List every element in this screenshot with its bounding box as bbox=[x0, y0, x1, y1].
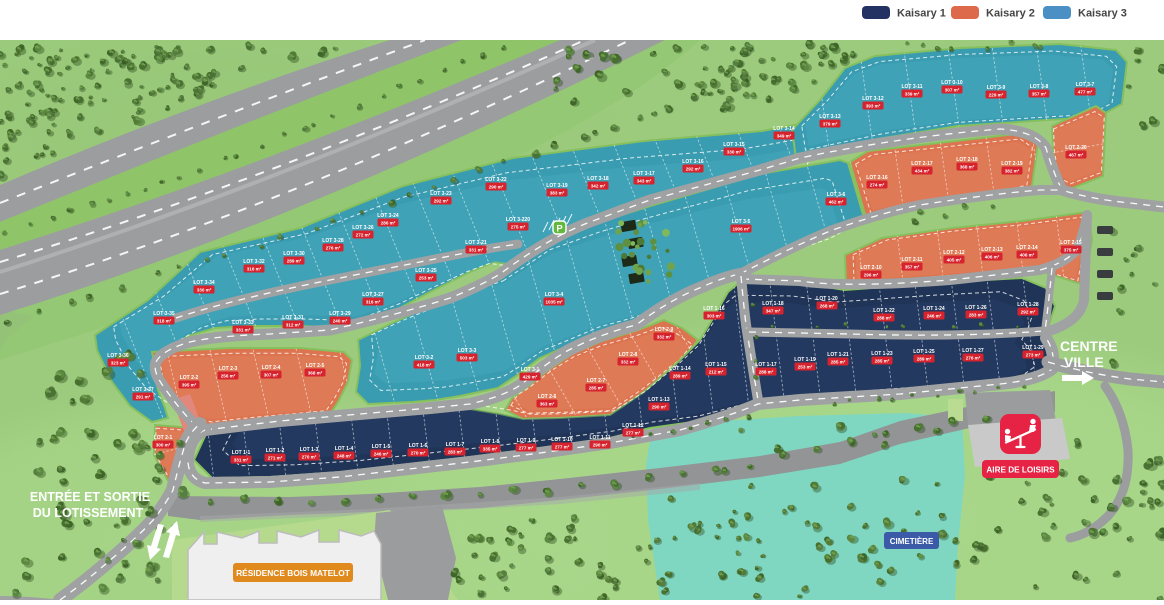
svg-text:289 m²: 289 m² bbox=[917, 357, 932, 362]
svg-text:LOT 3-25: LOT 3-25 bbox=[415, 268, 437, 274]
svg-text:LOT 1-28: LOT 1-28 bbox=[1017, 302, 1039, 308]
svg-text:LOT 1-12: LOT 1-12 bbox=[622, 423, 644, 429]
svg-text:LOT 1-14: LOT 1-14 bbox=[669, 366, 691, 372]
svg-text:342 m²: 342 m² bbox=[591, 184, 606, 189]
svg-text:339 m²: 339 m² bbox=[905, 92, 920, 97]
svg-text:LOT 2-16: LOT 2-16 bbox=[866, 175, 888, 181]
svg-text:LOT 3-13: LOT 3-13 bbox=[819, 114, 841, 120]
svg-text:LOT 3-12: LOT 3-12 bbox=[862, 96, 884, 102]
svg-text:LOT 2-14: LOT 2-14 bbox=[1016, 245, 1038, 251]
svg-text:LOT 1-9: LOT 1-9 bbox=[517, 438, 536, 444]
svg-text:LOT 1-4: LOT 1-4 bbox=[335, 446, 354, 452]
svg-text:289 m²: 289 m² bbox=[287, 259, 302, 264]
svg-text:274 m²: 274 m² bbox=[870, 183, 885, 188]
svg-text:332 m²: 332 m² bbox=[657, 335, 672, 340]
svg-text:LOT 3-14: LOT 3-14 bbox=[773, 126, 795, 132]
svg-text:LOT 1-15: LOT 1-15 bbox=[705, 362, 727, 368]
svg-text:LOT 1-3: LOT 1-3 bbox=[300, 447, 319, 453]
svg-text:LOT 3-8: LOT 3-8 bbox=[1030, 84, 1049, 90]
svg-text:LOT 3-29: LOT 3-29 bbox=[329, 311, 351, 317]
svg-text:268 m²: 268 m² bbox=[820, 304, 835, 309]
svg-text:382 m²: 382 m² bbox=[1005, 169, 1020, 174]
svg-text:270 m²: 270 m² bbox=[302, 455, 317, 460]
svg-text:DU LOTISSEMENT: DU LOTISSEMENT bbox=[33, 506, 144, 520]
svg-text:477 m²: 477 m² bbox=[1078, 90, 1093, 95]
svg-text:347 m²: 347 m² bbox=[766, 309, 781, 314]
svg-text:292 m²: 292 m² bbox=[686, 167, 701, 172]
svg-text:LOT 2-13: LOT 2-13 bbox=[981, 247, 1003, 253]
svg-text:LOT 3-37: LOT 3-37 bbox=[132, 387, 154, 393]
svg-text:LOT 3-9: LOT 3-9 bbox=[987, 85, 1006, 91]
svg-text:296 m²: 296 m² bbox=[864, 273, 879, 278]
svg-text:240 m²: 240 m² bbox=[333, 319, 348, 324]
svg-text:462 m²: 462 m² bbox=[829, 200, 844, 205]
svg-text:277 m²: 277 m² bbox=[519, 446, 534, 451]
svg-text:LOT 3-5: LOT 3-5 bbox=[732, 219, 751, 225]
svg-text:LOT 2-20: LOT 2-20 bbox=[1065, 145, 1087, 151]
svg-text:LOT 1-27: LOT 1-27 bbox=[962, 348, 984, 354]
svg-text:503 m²: 503 m² bbox=[460, 356, 475, 361]
svg-text:LOT 3-24: LOT 3-24 bbox=[377, 213, 399, 219]
svg-text:RÉSIDENCE BOIS MATELOT: RÉSIDENCE BOIS MATELOT bbox=[236, 567, 351, 578]
svg-text:248 m²: 248 m² bbox=[337, 454, 352, 459]
svg-text:292 m²: 292 m² bbox=[1021, 310, 1036, 315]
svg-text:331 m²: 331 m² bbox=[236, 328, 251, 333]
svg-text:LOT 2-8: LOT 2-8 bbox=[619, 352, 638, 358]
svg-text:312 m²: 312 m² bbox=[286, 323, 301, 328]
svg-text:LOT 3-36: LOT 3-36 bbox=[107, 353, 129, 359]
svg-text:406 m²: 406 m² bbox=[985, 255, 1000, 260]
svg-text:LOT 3-35: LOT 3-35 bbox=[153, 311, 175, 317]
svg-text:307 m²: 307 m² bbox=[264, 373, 279, 378]
svg-text:VILLE: VILLE bbox=[1064, 354, 1104, 370]
svg-text:323 m²: 323 m² bbox=[111, 361, 126, 366]
svg-text:316 m²: 316 m² bbox=[247, 267, 262, 272]
svg-text:405 m²: 405 m² bbox=[947, 258, 962, 263]
svg-text:P: P bbox=[556, 224, 563, 235]
svg-text:330 m²: 330 m² bbox=[197, 288, 212, 293]
svg-text:331 m²: 331 m² bbox=[234, 458, 249, 463]
svg-text:LOT 3-16: LOT 3-16 bbox=[682, 159, 704, 165]
svg-text:LOT 2-11: LOT 2-11 bbox=[901, 257, 922, 263]
svg-text:316 m²: 316 m² bbox=[366, 300, 381, 305]
svg-text:LOT 3-17: LOT 3-17 bbox=[633, 171, 655, 177]
svg-text:288 m²: 288 m² bbox=[759, 370, 774, 375]
svg-text:256 m²: 256 m² bbox=[221, 374, 236, 379]
svg-text:LOT 3-27: LOT 3-27 bbox=[362, 292, 384, 298]
svg-text:LOT 1-24: LOT 1-24 bbox=[923, 306, 945, 312]
svg-text:289 m²: 289 m² bbox=[673, 374, 688, 379]
svg-text:LOT 1-7: LOT 1-7 bbox=[446, 442, 465, 448]
svg-text:LOT 3-15: LOT 3-15 bbox=[723, 142, 745, 148]
svg-text:LOT 1-26: LOT 1-26 bbox=[965, 305, 987, 311]
svg-text:253 m²: 253 m² bbox=[419, 276, 434, 281]
svg-text:LOT 3-21: LOT 3-21 bbox=[465, 240, 487, 246]
svg-text:379 m²: 379 m² bbox=[823, 122, 838, 127]
svg-text:406 m²: 406 m² bbox=[1020, 253, 1035, 258]
svg-text:368 m²: 368 m² bbox=[960, 165, 975, 170]
svg-text:246 m²: 246 m² bbox=[927, 314, 942, 319]
svg-text:Kaisary 2: Kaisary 2 bbox=[986, 8, 1035, 20]
svg-text:418 m²: 418 m² bbox=[417, 363, 432, 368]
svg-text:277 m²: 277 m² bbox=[555, 445, 570, 450]
svg-text:LOT 3-34: LOT 3-34 bbox=[193, 280, 215, 286]
svg-text:212 m²: 212 m² bbox=[709, 370, 724, 375]
svg-text:307 m²: 307 m² bbox=[945, 88, 960, 93]
svg-text:285 m²: 285 m² bbox=[831, 360, 846, 365]
svg-text:343 m²: 343 m² bbox=[637, 179, 652, 184]
svg-text:1035 m²: 1035 m² bbox=[545, 300, 563, 305]
svg-text:LOT 3-22: LOT 3-22 bbox=[485, 177, 507, 183]
svg-text:LOT 3-11: LOT 3-11 bbox=[901, 84, 922, 90]
svg-text:LOT 3-19: LOT 3-19 bbox=[546, 183, 568, 189]
svg-text:300 m²: 300 m² bbox=[156, 443, 171, 448]
svg-text:330 m²: 330 m² bbox=[727, 150, 742, 155]
svg-text:285 m²: 285 m² bbox=[589, 386, 604, 391]
svg-text:LOT 3-30: LOT 3-30 bbox=[283, 251, 305, 257]
svg-text:LOT 2-7: LOT 2-7 bbox=[587, 378, 606, 384]
svg-text:LOT 1-20: LOT 1-20 bbox=[816, 296, 838, 302]
svg-text:467 m²: 467 m² bbox=[1069, 153, 1084, 158]
svg-text:357 m²: 357 m² bbox=[1032, 92, 1047, 97]
svg-text:LOT 1-6: LOT 1-6 bbox=[409, 443, 428, 449]
svg-text:253 m²: 253 m² bbox=[798, 365, 813, 370]
svg-text:LOT 1-22: LOT 1-22 bbox=[873, 308, 895, 314]
svg-text:349 m²: 349 m² bbox=[777, 134, 792, 139]
svg-text:277 m²: 277 m² bbox=[626, 431, 641, 436]
svg-text:LOT 2-2: LOT 2-2 bbox=[180, 375, 199, 381]
svg-text:LOT 3-3: LOT 3-3 bbox=[458, 348, 477, 354]
svg-text:LOT 1-17: LOT 1-17 bbox=[755, 362, 777, 368]
svg-text:CENTRE: CENTRE bbox=[1060, 338, 1118, 354]
svg-text:AIRE DE LOISIRS: AIRE DE LOISIRS bbox=[986, 466, 1055, 475]
svg-text:LOT 2-12: LOT 2-12 bbox=[943, 250, 965, 256]
svg-text:LOT 1-8: LOT 1-8 bbox=[481, 439, 500, 445]
svg-text:383 m²: 383 m² bbox=[550, 191, 565, 196]
svg-text:288 m²: 288 m² bbox=[877, 316, 892, 321]
svg-text:LOT 2-5: LOT 2-5 bbox=[306, 363, 325, 369]
svg-text:LOT 1-21: LOT 1-21 bbox=[827, 352, 849, 358]
svg-text:ENTRÉE ET SORTIE: ENTRÉE ET SORTIE bbox=[30, 489, 150, 504]
svg-text:LOT 1-1: LOT 1-1 bbox=[232, 450, 251, 456]
svg-text:LOT 2-10: LOT 2-10 bbox=[860, 265, 882, 271]
svg-text:LOT 3-1: LOT 3-1 bbox=[521, 367, 540, 373]
svg-text:LOT 1-16: LOT 1-16 bbox=[703, 306, 725, 312]
svg-text:LOT 2-3: LOT 2-3 bbox=[219, 366, 238, 372]
svg-text:Kaisary 3: Kaisary 3 bbox=[1078, 8, 1127, 20]
svg-text:335 m²: 335 m² bbox=[483, 447, 498, 452]
svg-text:LOT 1-18: LOT 1-18 bbox=[762, 301, 784, 307]
svg-text:LOT 2-19: LOT 2-19 bbox=[1001, 161, 1023, 167]
svg-text:LOT 2-17: LOT 2-17 bbox=[911, 161, 933, 167]
svg-text:276 m²: 276 m² bbox=[966, 356, 981, 361]
svg-text:LOT 2-15: LOT 2-15 bbox=[1060, 240, 1082, 246]
svg-text:276 m²: 276 m² bbox=[326, 246, 341, 251]
svg-text:290 m²: 290 m² bbox=[652, 405, 667, 410]
svg-text:LOT 3-32: LOT 3-32 bbox=[243, 259, 265, 265]
svg-text:290 m²: 290 m² bbox=[489, 185, 504, 190]
svg-text:LOT 1-10: LOT 1-10 bbox=[551, 437, 573, 443]
svg-text:LOT 3-10: LOT 3-10 bbox=[941, 80, 963, 86]
svg-text:LOT 3-23: LOT 3-23 bbox=[430, 191, 452, 197]
svg-text:271 m²: 271 m² bbox=[268, 456, 283, 461]
svg-text:292 m²: 292 m² bbox=[434, 199, 449, 204]
svg-text:375 m²: 375 m² bbox=[1064, 248, 1079, 253]
svg-text:LOT 2-6: LOT 2-6 bbox=[538, 394, 557, 400]
svg-text:LOT 3-220: LOT 3-220 bbox=[506, 217, 530, 223]
svg-text:291 m²: 291 m² bbox=[136, 395, 151, 400]
svg-text:LOT 1-29: LOT 1-29 bbox=[1022, 345, 1044, 351]
svg-text:332 m²: 332 m² bbox=[621, 360, 636, 365]
svg-text:LOT 1-25: LOT 1-25 bbox=[913, 349, 935, 355]
svg-text:357 m²: 357 m² bbox=[905, 265, 920, 270]
svg-text:286 m²: 286 m² bbox=[381, 221, 396, 226]
svg-text:LOT 1-2: LOT 1-2 bbox=[266, 448, 285, 454]
svg-text:LOT 3-31: LOT 3-31 bbox=[282, 315, 304, 321]
svg-text:434 m²: 434 m² bbox=[915, 169, 930, 174]
svg-text:LOT 2-4: LOT 2-4 bbox=[262, 365, 281, 371]
svg-text:331 m²: 331 m² bbox=[469, 248, 484, 253]
svg-text:LOT 1-13: LOT 1-13 bbox=[648, 397, 670, 403]
svg-text:LOT 3-7: LOT 3-7 bbox=[1076, 82, 1095, 88]
svg-text:429 m²: 429 m² bbox=[523, 375, 538, 380]
svg-text:LOT 3-33: LOT 3-33 bbox=[232, 320, 254, 326]
svg-text:LOT 3-2: LOT 3-2 bbox=[415, 355, 434, 361]
svg-text:LOT 3-18: LOT 3-18 bbox=[587, 176, 609, 182]
svg-text:393 m²: 393 m² bbox=[866, 104, 881, 109]
svg-text:283 m²: 283 m² bbox=[448, 450, 463, 455]
svg-text:LOT 3-6: LOT 3-6 bbox=[827, 192, 846, 198]
svg-text:229 m²: 229 m² bbox=[989, 93, 1004, 98]
svg-text:285 m²: 285 m² bbox=[875, 359, 890, 364]
svg-text:283 m²: 283 m² bbox=[969, 313, 984, 318]
svg-text:246 m²: 246 m² bbox=[374, 452, 389, 457]
svg-text:275 m²: 275 m² bbox=[511, 225, 526, 230]
svg-text:CIMETIÈRE: CIMETIÈRE bbox=[890, 537, 934, 546]
svg-text:LOT 1-23: LOT 1-23 bbox=[871, 351, 893, 357]
svg-text:1906 m²: 1906 m² bbox=[732, 227, 750, 232]
svg-text:LOT 3-4: LOT 3-4 bbox=[545, 292, 564, 298]
svg-text:LOT 1-11: LOT 1-11 bbox=[589, 435, 610, 441]
svg-text:363 m²: 363 m² bbox=[540, 402, 555, 407]
svg-text:LOT 2-18: LOT 2-18 bbox=[956, 157, 978, 163]
svg-text:Kaisary 1: Kaisary 1 bbox=[897, 8, 946, 20]
svg-text:368 m²: 368 m² bbox=[308, 371, 323, 376]
svg-text:273 m²: 273 m² bbox=[1026, 353, 1041, 358]
svg-text:270 m²: 270 m² bbox=[411, 451, 426, 456]
svg-text:303 m²: 303 m² bbox=[707, 314, 722, 319]
svg-text:290 m²: 290 m² bbox=[593, 443, 608, 448]
svg-text:LOT 3-28: LOT 3-28 bbox=[322, 238, 344, 244]
svg-text:LOT 1-5: LOT 1-5 bbox=[372, 444, 391, 450]
svg-text:272 m²: 272 m² bbox=[356, 233, 371, 238]
svg-text:LOT 2-9: LOT 2-9 bbox=[655, 327, 674, 333]
svg-text:318 m²: 318 m² bbox=[157, 319, 172, 324]
svg-text:LOT 3-26: LOT 3-26 bbox=[352, 225, 374, 231]
svg-text:LOT 1-19: LOT 1-19 bbox=[794, 357, 816, 363]
svg-text:LOT 2-1: LOT 2-1 bbox=[154, 435, 173, 441]
svg-text:395 m²: 395 m² bbox=[182, 383, 197, 388]
